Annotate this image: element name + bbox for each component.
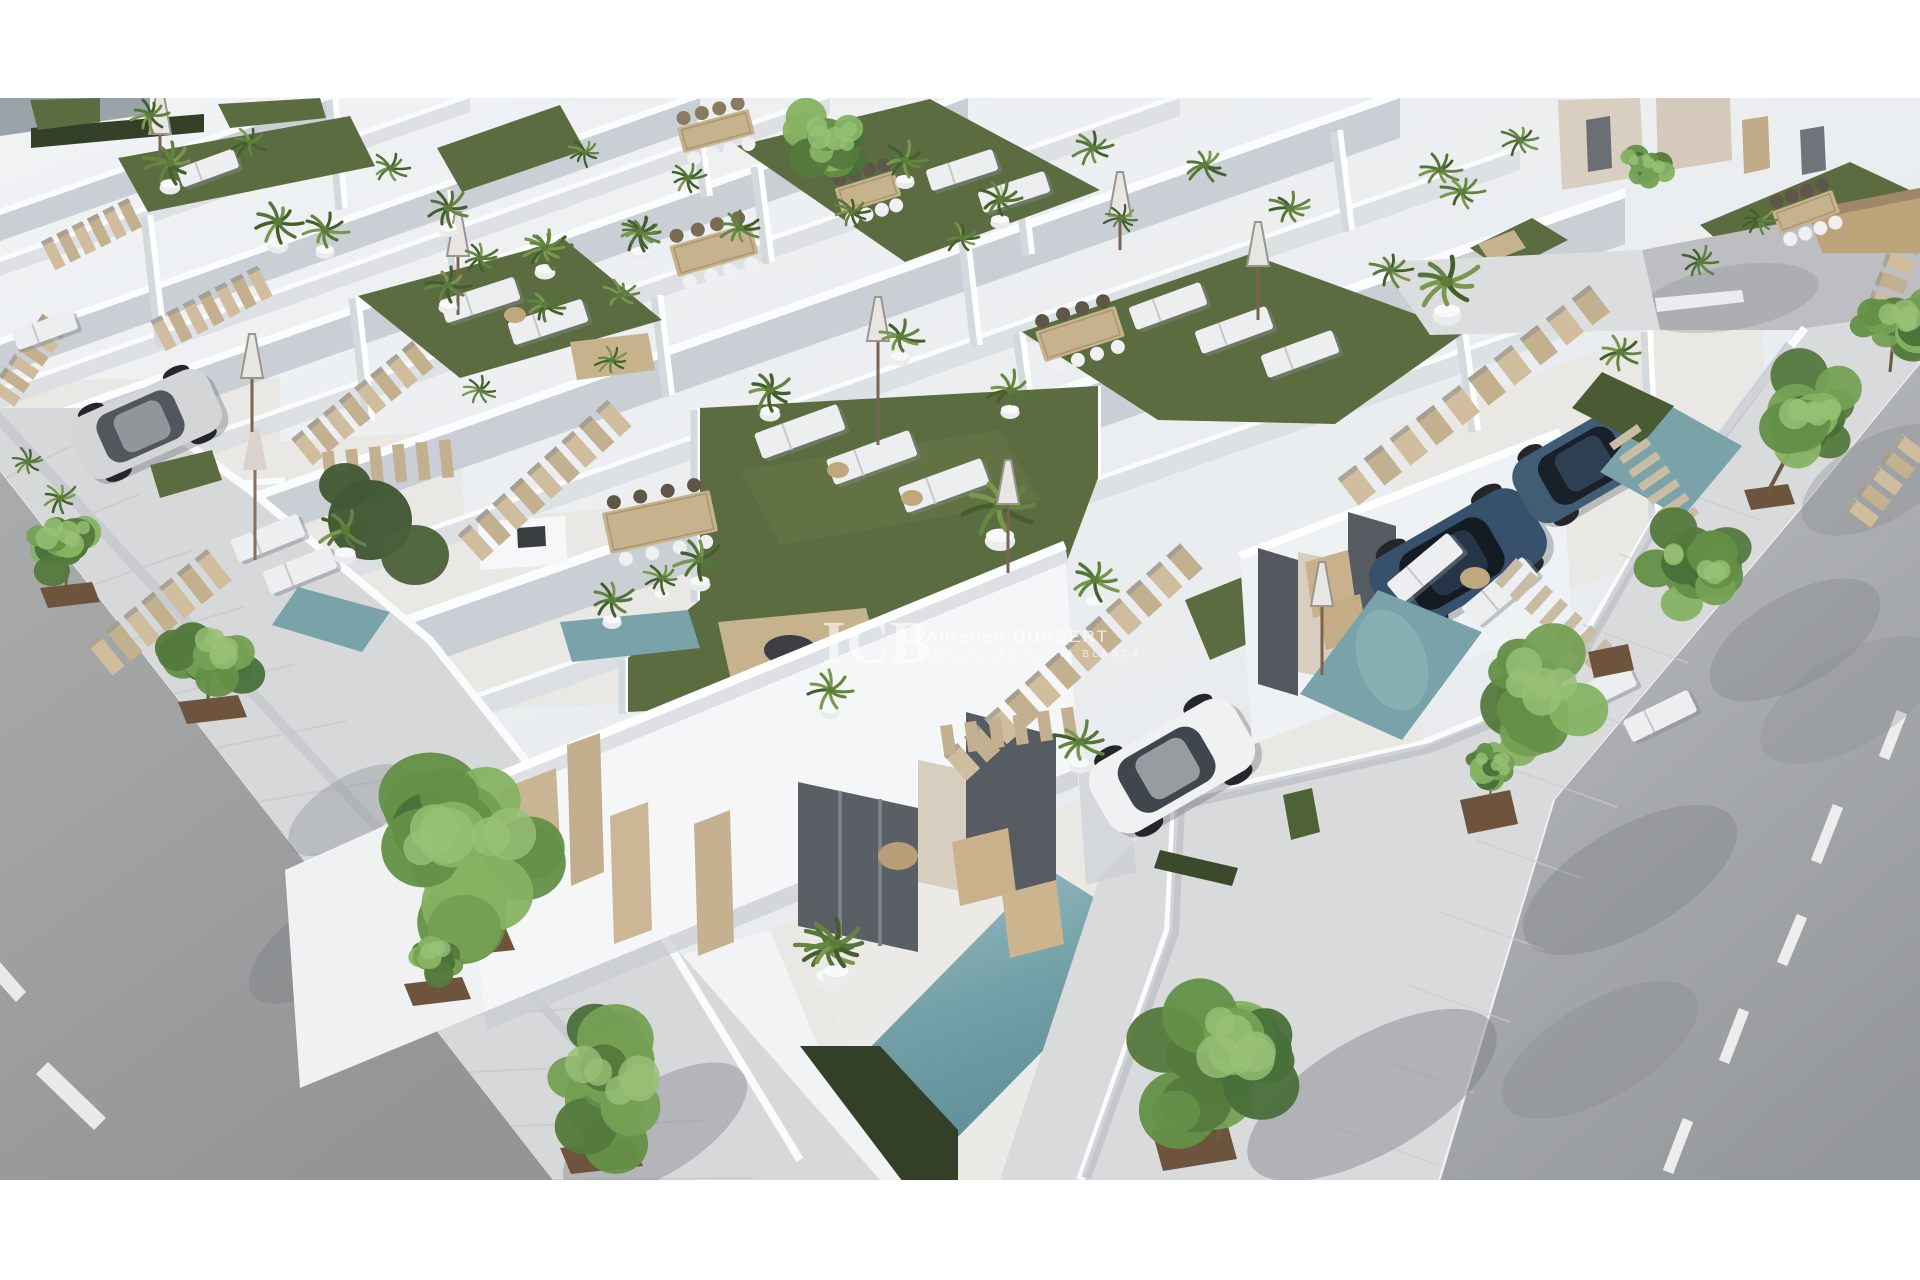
svg-text:IMMOBILIER COSTA BLANCA: IMMOBILIER COSTA BLANCA [927, 649, 1143, 660]
svg-text:Aurélien DUSSERT: Aurélien DUSSERT [926, 627, 1109, 646]
svg-text:ICB: ICB [822, 610, 930, 677]
